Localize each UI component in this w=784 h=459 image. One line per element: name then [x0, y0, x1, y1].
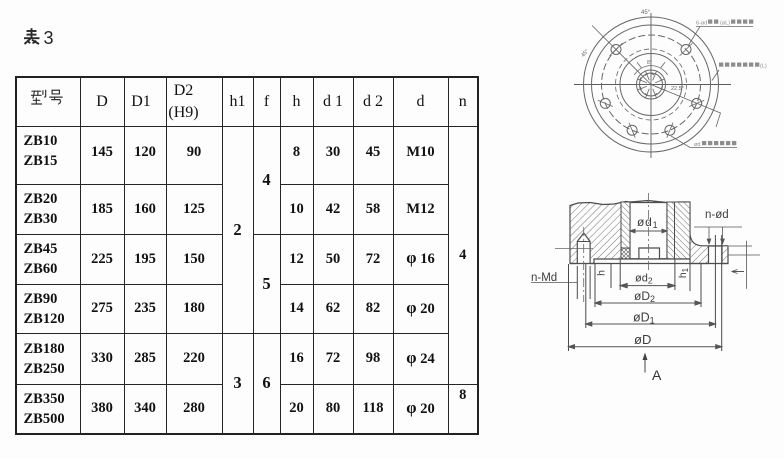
svg-text:h1: h1: [677, 267, 690, 278]
svg-text:(L): (L): [760, 64, 767, 70]
svg-text:n-Md: n-Md: [531, 272, 557, 284]
svg-text:ød1: ød1: [637, 215, 658, 230]
svg-text:ød: ød: [694, 142, 700, 148]
svg-text:øD1: øD1: [633, 311, 655, 326]
svg-text:ød2: ød2: [635, 273, 653, 286]
svg-text:45°: 45°: [580, 48, 590, 58]
svg-text:h: h: [595, 270, 607, 276]
svg-text:6-ød: 6-ød: [696, 21, 707, 27]
svg-text:45°: 45°: [641, 10, 651, 16]
svg-text:øD2: øD2: [634, 289, 655, 304]
svg-text:22.5°: 22.5°: [671, 86, 684, 92]
svg-text:A: A: [652, 367, 662, 383]
svg-text:(øL): (øL): [720, 21, 730, 27]
svg-text:n-ød: n-ød: [705, 209, 729, 221]
svg-text:8°: 8°: [647, 60, 652, 66]
svg-text:3: 3: [44, 28, 54, 48]
svg-text:øD: øD: [634, 332, 651, 347]
